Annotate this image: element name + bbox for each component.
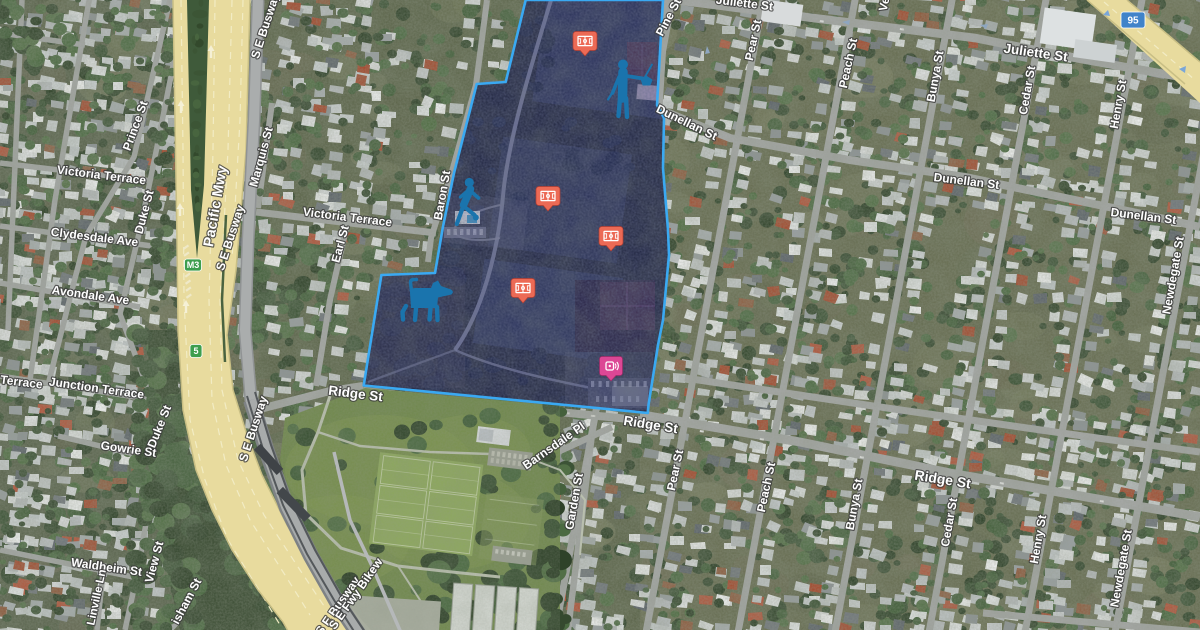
svg-text:95: 95	[1127, 16, 1139, 27]
svg-text:M3: M3	[187, 260, 200, 270]
svg-text:5: 5	[193, 346, 198, 356]
